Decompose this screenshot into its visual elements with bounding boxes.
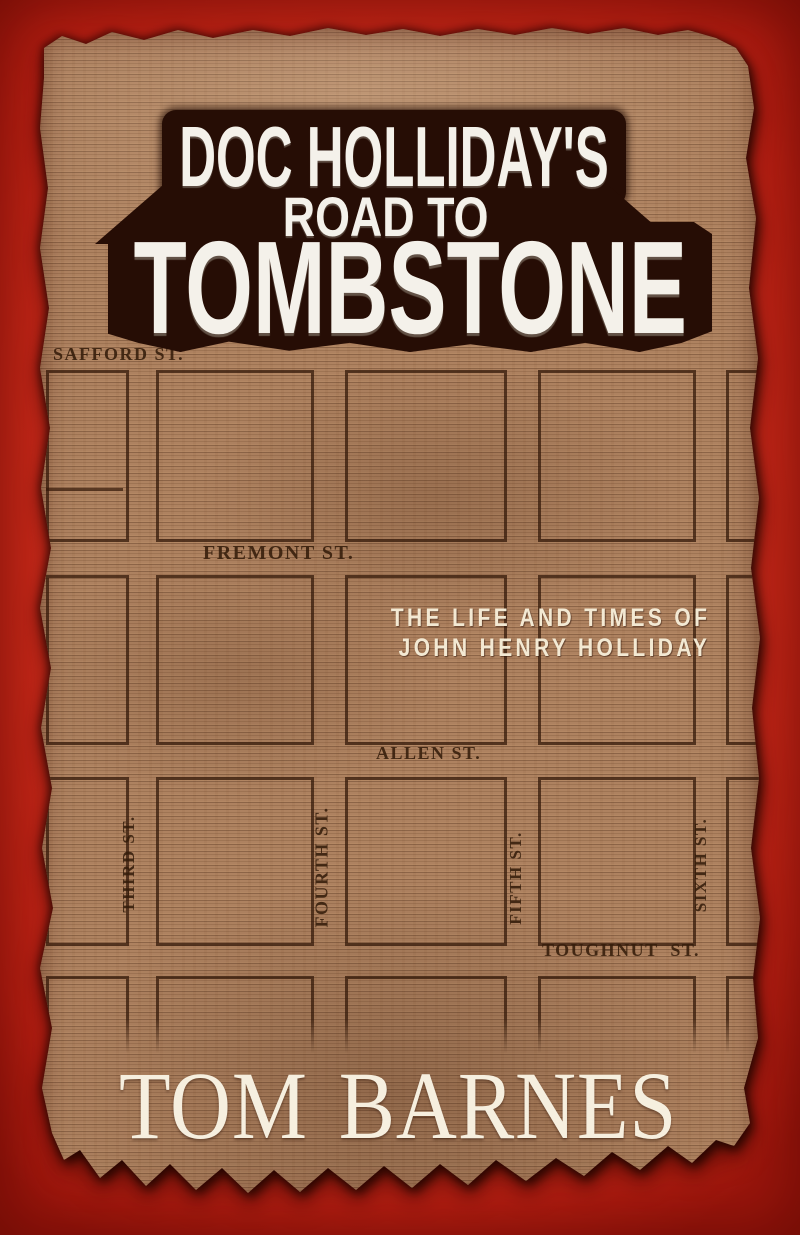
city-block <box>726 370 779 542</box>
street-label-sixth: SIXTH ST. <box>691 805 711 925</box>
title-line-3: TOMBSTONE <box>108 224 712 350</box>
city-block <box>46 575 129 745</box>
city-block <box>46 777 129 946</box>
city-block <box>46 370 129 542</box>
city-block <box>538 777 696 946</box>
author-name: TOM BARNES <box>28 1050 768 1160</box>
subtitle-line-1: THE LIFE AND TIMES OF <box>391 603 710 633</box>
city-block <box>345 777 507 946</box>
street-label-allen: ALLEN ST. <box>376 743 481 764</box>
city-block <box>156 575 314 745</box>
subtitle-line-2: JOHN HENRY HOLLIDAY <box>391 633 710 663</box>
torn-paper-shadow: SAFFORD ST. FREMONT ST. ALLEN ST. TOUGHN… <box>28 18 768 1216</box>
street-label-fifth: FIFTH ST. <box>506 818 526 938</box>
torn-paper-map: SAFFORD ST. FREMONT ST. ALLEN ST. TOUGHN… <box>28 18 768 1216</box>
city-block <box>538 370 696 542</box>
book-cover: SAFFORD ST. FREMONT ST. ALLEN ST. TOUGHN… <box>0 0 800 1235</box>
city-block <box>726 976 779 1053</box>
city-block <box>726 777 779 946</box>
city-block <box>156 777 314 946</box>
street-label-fremont: FREMONT ST. <box>203 542 354 565</box>
street-label-third: THIRD ST. <box>119 804 139 924</box>
city-block <box>156 976 314 1053</box>
city-block <box>345 976 507 1053</box>
alley-line <box>46 488 123 491</box>
city-block <box>726 575 779 745</box>
city-block <box>156 370 314 542</box>
subtitle: THE LIFE AND TIMES OF JOHN HENRY HOLLIDA… <box>330 603 710 663</box>
city-block <box>345 370 507 542</box>
street-label-fourth: FOURTH ST. <box>312 808 333 928</box>
street-label-toughnut: TOUGHNUT ST. <box>542 940 700 961</box>
city-block <box>538 976 696 1053</box>
city-block <box>46 976 129 1053</box>
